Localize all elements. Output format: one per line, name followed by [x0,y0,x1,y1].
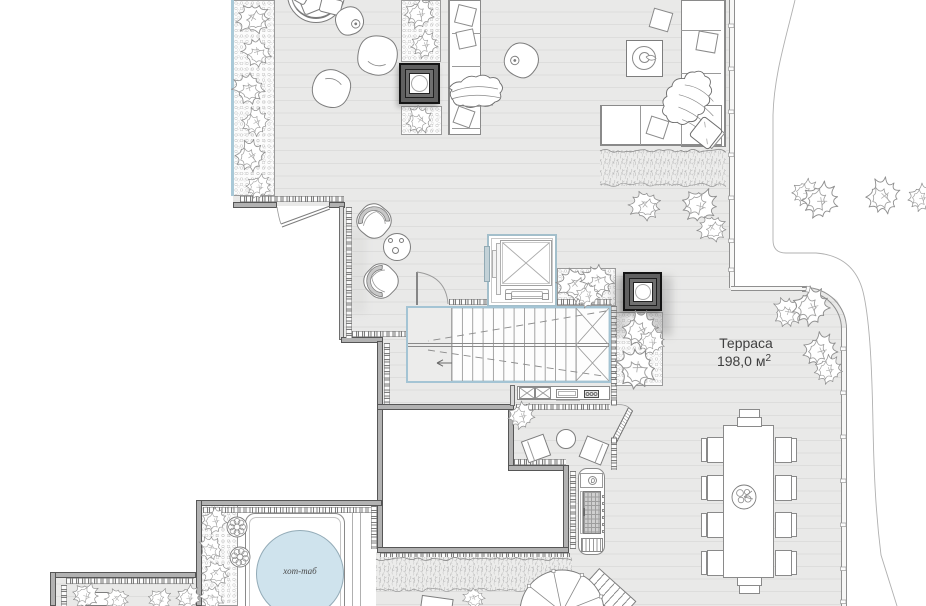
svg-text:Терраса: Терраса [719,335,773,351]
svg-text:198,0 м2: 198,0 м2 [717,353,772,369]
